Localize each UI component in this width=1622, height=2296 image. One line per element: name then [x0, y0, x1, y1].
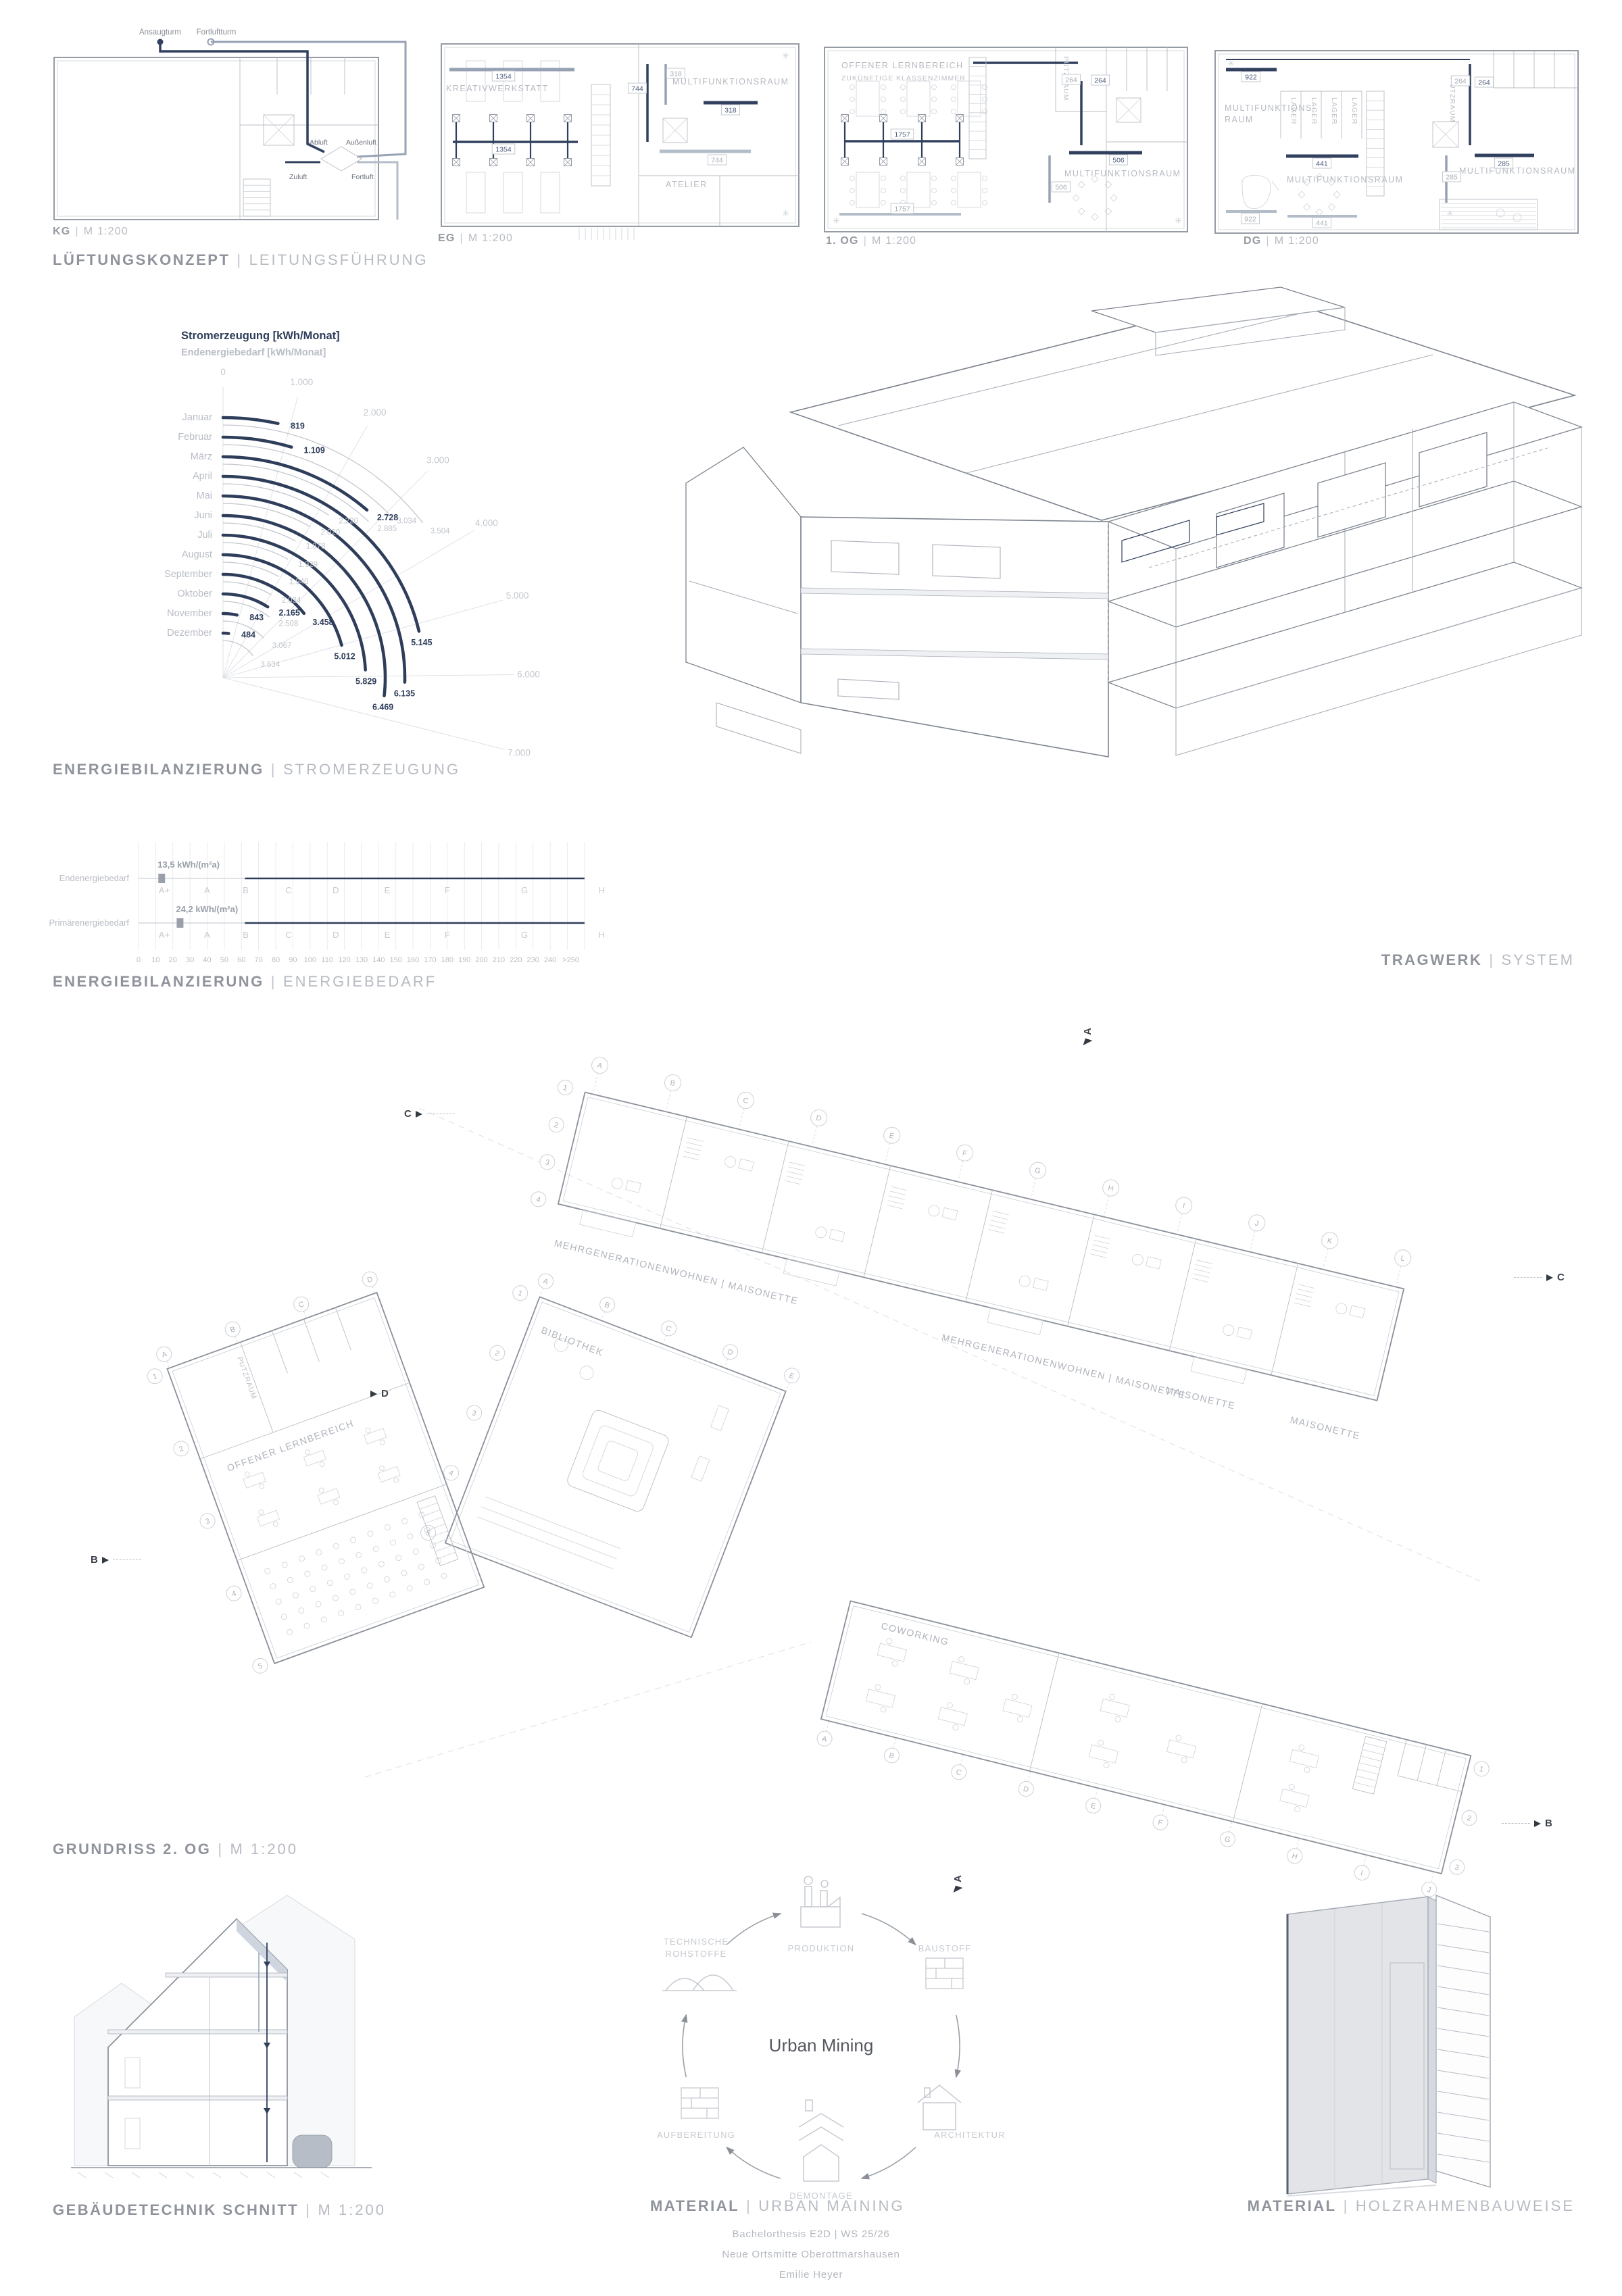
svg-text:264: 264 — [1065, 76, 1077, 84]
caption-kg: KG|M 1:200 — [53, 226, 128, 238]
plant-symbol: ✳ — [1227, 58, 1235, 68]
svg-text:441: 441 — [1316, 160, 1328, 168]
svg-text:April: April — [193, 471, 212, 482]
duct-value-badge: 264 — [1451, 76, 1469, 86]
section-title-energiebedarf: ENERGIEBILANZIERUNG|ENERGIEBEDARF — [53, 973, 437, 991]
grid-bubble: I — [1169, 1196, 1194, 1237]
svg-text:744: 744 — [711, 157, 723, 165]
svg-text:März: März — [191, 451, 212, 462]
mound-icon — [662, 1975, 737, 1991]
dg-room-lager-2: LAGER — [1310, 97, 1318, 125]
mining-node-label: TECHNISCHEROHSTOFFE — [664, 1937, 729, 1959]
dg-room-mfr-left2: RAUM — [1225, 115, 1254, 124]
svg-text:2.220: 2.220 — [339, 518, 358, 526]
svg-text:180: 180 — [441, 956, 453, 964]
energy-scale-chart: 13,5 kWh/(m²a)EndenergiebedarfA+ABCDEFGH… — [37, 837, 612, 972]
label-putzraum: PUTZRAUM — [235, 1355, 258, 1400]
svg-text:170: 170 — [424, 956, 436, 964]
grid-bubble: 1 — [145, 1367, 164, 1386]
svg-text:Juni: Juni — [194, 510, 212, 521]
svg-text:922: 922 — [1244, 216, 1256, 224]
floor-plan-kg: Ansaugturm Fortluftturm Abluft Außenluft… — [41, 14, 419, 250]
stud-frame-leaf — [1436, 1895, 1490, 2187]
svg-text:2.020: 2.020 — [320, 528, 340, 536]
caption-og1: 1. OG|M 1:200 — [826, 235, 916, 247]
duct-value-badge: 1757 — [891, 203, 914, 214]
svg-text:D: D — [333, 885, 339, 895]
mining-node-label: PRODUKTION — [788, 1943, 855, 1953]
svg-text:B: B — [243, 885, 249, 895]
svg-text:F: F — [445, 930, 450, 940]
svg-text:24,2 kWh/(m²a): 24,2 kWh/(m²a) — [176, 904, 238, 914]
svg-text:3.458: 3.458 — [312, 618, 333, 627]
grid-bubble: 3 — [198, 1512, 217, 1530]
svg-text:H: H — [599, 885, 605, 895]
footer-project: Neue Ortsmitte Oberottmarshausen — [541, 2245, 1081, 2265]
svg-text:3.634: 3.634 — [260, 661, 280, 669]
svg-text:2.885: 2.885 — [377, 525, 397, 533]
svg-text:5.145: 5.145 — [411, 638, 432, 647]
section-arrow-icon — [1546, 1274, 1553, 1281]
svg-text:Oktober: Oktober — [177, 589, 212, 599]
duct-value-badge: 506 — [1109, 155, 1127, 165]
terrace — [1440, 199, 1538, 230]
svg-text:318: 318 — [724, 107, 737, 115]
svg-text:506: 506 — [1112, 157, 1125, 165]
svg-text:2.165: 2.165 — [279, 608, 300, 618]
svg-text:60: 60 — [237, 956, 245, 964]
svg-text:Januar: Januar — [182, 412, 213, 423]
kg-label-abluft: Abluft — [310, 139, 328, 147]
plant-symbol: ✳ — [833, 216, 840, 226]
svg-text:90: 90 — [289, 956, 297, 964]
svg-text:1.000: 1.000 — [290, 377, 313, 387]
svg-text:1354: 1354 — [495, 146, 512, 154]
duct-value-badge: 285 — [1494, 158, 1513, 168]
svg-text:70: 70 — [255, 956, 263, 964]
svg-text:80: 80 — [272, 956, 280, 964]
section-title-grundriss: GRUNDRISS 2. OG|M 1:200 — [53, 1841, 298, 1858]
svg-text:285: 285 — [1446, 174, 1458, 182]
grid-bubble: D — [1017, 1770, 1038, 1798]
section-marker-b-right: B — [1502, 1818, 1552, 1829]
svg-text:819: 819 — [291, 421, 305, 430]
duct-value-badge: 441 — [1312, 158, 1331, 168]
grid-bubble: C — [731, 1091, 756, 1131]
grid-bubble: K — [1315, 1230, 1340, 1271]
dg-room-mfr-right: MULTIFUNKTIONSRAUM — [1459, 166, 1576, 176]
svg-text:Juli: Juli — [197, 530, 212, 541]
kg-label-fortluftturm: Fortluftturm — [197, 28, 237, 36]
svg-text:C: C — [285, 885, 291, 895]
svg-text:Primärenergiebedarf: Primärenergiebedarf — [49, 918, 129, 928]
dg-room-lager-3: LAGER — [1330, 97, 1338, 125]
svg-text:H: H — [599, 930, 605, 940]
grid-bubble: G — [1023, 1161, 1048, 1201]
kg-label-ansaugturm: Ansaugturm — [139, 28, 181, 36]
mining-node-label: AUFBEREITUNG — [657, 2130, 735, 2140]
footer-author: Emilie Heyer — [541, 2265, 1081, 2285]
svg-text:264: 264 — [1478, 79, 1490, 87]
grid-bubble: H — [1096, 1178, 1121, 1219]
grid-bubble: D — [804, 1108, 829, 1149]
duct-value-badge: 1757 — [891, 129, 914, 139]
plant-symbol: ✳ — [782, 51, 789, 61]
svg-text:50: 50 — [220, 956, 228, 964]
svg-text:1757: 1757 — [894, 131, 910, 139]
eg-room-atelier: ATELIER — [666, 180, 708, 189]
section-title-holzrahmen: MATERIAL|HOLZRAHMENBAUWEISE — [1248, 2197, 1575, 2215]
svg-text:100: 100 — [304, 956, 316, 964]
svg-text:230: 230 — [527, 956, 539, 964]
svg-text:G: G — [521, 885, 528, 895]
floor-plan-dg: MULTIFUNKTIONS- RAUM LAGER LAGER LAGER L… — [1210, 20, 1585, 243]
svg-text:140: 140 — [372, 956, 385, 964]
caption-dg: DG|M 1:200 — [1244, 235, 1319, 247]
svg-text:1.929: 1.929 — [298, 561, 318, 569]
grid-bubble: 5 — [251, 1656, 270, 1675]
section-marker-d: D — [370, 1388, 389, 1399]
svg-text:September: September — [164, 569, 212, 580]
svg-text:7.000: 7.000 — [508, 748, 531, 758]
duct-value-badge: 264 — [1062, 74, 1080, 84]
svg-text:240: 240 — [544, 956, 556, 964]
svg-text:6.000: 6.000 — [517, 669, 540, 679]
svg-text:1.109: 1.109 — [304, 446, 325, 455]
svg-text:130: 130 — [355, 956, 368, 964]
svg-text:922: 922 — [1245, 74, 1257, 82]
eg-room-kreativwerkstatt: KREATIVWERKSTATT — [446, 84, 549, 93]
grid-bubble: A — [816, 1719, 837, 1747]
svg-text:190: 190 — [458, 956, 470, 964]
demontage-icon — [799, 2100, 843, 2181]
svg-text:November: November — [167, 608, 212, 619]
svg-text:264: 264 — [1094, 77, 1106, 85]
og1-room-lernbereich: OFFENER LERNBEREICH — [841, 61, 964, 70]
grid-bubble: H — [1286, 1837, 1307, 1865]
svg-text:F: F — [445, 885, 450, 895]
radial-energy-chart: 01.0002.0003.0004.0005.0006.0007.000Janu… — [149, 368, 568, 774]
svg-text:843: 843 — [249, 613, 264, 622]
svg-text:506: 506 — [1055, 184, 1067, 192]
svg-text:6.469: 6.469 — [372, 703, 393, 712]
duct-value-badge: 506 — [1052, 182, 1070, 192]
dg-room-lager-1: LAGER — [1289, 97, 1298, 125]
svg-text:150: 150 — [390, 956, 402, 964]
duct-value-badge: 922 — [1242, 72, 1260, 82]
plant-symbol: ✳ — [1446, 208, 1454, 218]
factory-icon — [801, 1876, 840, 1927]
section-arrow-icon — [370, 1391, 377, 1397]
heat-exchanger-symbol — [321, 147, 362, 171]
duct-value-badge: 922 — [1241, 214, 1259, 224]
grid-bubble: 4 — [224, 1584, 243, 1603]
eg-room-multifunktionsraum: MULTIFUNKTIONSRAUM — [672, 77, 789, 86]
caption-eg: EG|M 1:200 — [438, 232, 513, 245]
duct-value-badge: 744 — [628, 83, 646, 93]
svg-text:3.504: 3.504 — [431, 528, 450, 536]
svg-text:210: 210 — [493, 956, 505, 964]
svg-text:A+: A+ — [159, 885, 170, 895]
footer-thesis: Bachelorthesis E2D | WS 25/26 — [541, 2224, 1081, 2245]
svg-text:6.135: 6.135 — [394, 689, 415, 699]
svg-text:2.728: 2.728 — [377, 513, 398, 522]
mining-node-label: BAUSTOFF — [918, 1943, 972, 1953]
section-title-stromerzeugung: ENERGIEBILANZIERUNG|STROMERZEUGUNG — [53, 761, 460, 778]
duct-value-badge: 285 — [1442, 172, 1460, 182]
gas-tank — [293, 2135, 332, 2168]
svg-text:August: August — [182, 549, 212, 560]
svg-text:Endenergiebedarf: Endenergiebedarf — [59, 873, 130, 883]
plant-symbol: ✳ — [1175, 216, 1182, 226]
dg-room-mfr-left1: MULTIFUNKTIONS- — [1225, 103, 1316, 113]
duct-value-badge: 318 — [666, 68, 685, 78]
grid-bubble: J — [1242, 1213, 1267, 1253]
footer: Bachelorthesis E2D | WS 25/26 Neue Ortsm… — [541, 2224, 1081, 2285]
og1-room-multifunktionsraum: MULTIFUNKTIONSRAUM — [1064, 169, 1181, 178]
svg-text:160: 160 — [407, 956, 419, 964]
section-marker-c-right: C — [1514, 1272, 1565, 1283]
section-arrow-icon — [1083, 1039, 1093, 1048]
radial-chart-title: Stromerzeugung [kWh/Monat] — [181, 330, 340, 343]
svg-text:Mai: Mai — [197, 491, 212, 501]
svg-text:A+: A+ — [159, 930, 170, 940]
svg-text:5.000: 5.000 — [506, 591, 529, 601]
brick-wall-icon-2 — [681, 2088, 718, 2118]
svg-text:1.878: 1.878 — [306, 543, 326, 551]
section-title-gebaeudetechnik: GEBÄUDETECHNIK SCHNITT|M 1:200 — [53, 2201, 386, 2219]
urban-mining-diagram: PRODUKTIONBAUSTOFFARCHITEKTURDEMONTAGEAU… — [629, 1865, 1034, 2216]
dg-room-lager-4: LAGER — [1350, 97, 1358, 125]
svg-text:120: 120 — [338, 956, 350, 964]
svg-text:1757: 1757 — [894, 205, 910, 214]
svg-text:D: D — [333, 930, 339, 940]
svg-text:264: 264 — [1454, 78, 1467, 86]
label-bibliothek: BIBLIOTHEK — [540, 1324, 606, 1358]
svg-text:3.067: 3.067 — [272, 642, 292, 650]
svg-text:1.940: 1.940 — [289, 578, 309, 587]
brick-wall-icon — [926, 1958, 963, 1989]
svg-text:441: 441 — [1316, 220, 1328, 228]
svg-text:G: G — [521, 930, 528, 940]
svg-text:A: A — [204, 930, 210, 940]
svg-text:13,5 kWh/(m²a): 13,5 kWh/(m²a) — [157, 859, 220, 870]
section-marker-c-left: C — [404, 1108, 455, 1120]
svg-text:30: 30 — [186, 956, 194, 964]
svg-text:3.000: 3.000 — [426, 455, 449, 466]
mining-center-label: Urban Mining — [769, 2035, 874, 2055]
piano — [1242, 175, 1271, 208]
duct-value-badge: 264 — [1091, 75, 1109, 85]
label-maisonette-2: MAISONETTE — [1289, 1414, 1362, 1441]
grid-bubble: E — [1084, 1786, 1105, 1814]
svg-text:2.000: 2.000 — [364, 407, 387, 418]
grid-bubble: F — [1152, 1803, 1173, 1831]
section-arrow-icon — [1534, 1820, 1541, 1827]
grid-bubble: I — [1353, 1853, 1374, 1882]
svg-text:Dezember: Dezember — [167, 628, 212, 639]
section-marker-a-top: A — [1084, 1026, 1091, 1047]
floor-plan-eg: KREATIVWERKSTATT MULTIFUNKTIONSRAUM ATEL… — [436, 17, 804, 240]
svg-text:B: B — [243, 930, 249, 940]
svg-text:285: 285 — [1498, 160, 1510, 168]
svg-text:Februar: Februar — [178, 432, 212, 443]
svg-text:C: C — [285, 930, 291, 940]
timber-frame-drawing — [1267, 1882, 1592, 2199]
svg-text:E: E — [385, 930, 391, 940]
svg-text:40: 40 — [203, 956, 211, 964]
kg-label-zuluft: Zuluft — [289, 173, 307, 181]
duct-value-badge: 1354 — [492, 144, 515, 154]
plant-symbol: ✳ — [782, 208, 789, 218]
grid-bubble: E — [877, 1126, 902, 1166]
section-title-lueftung: LÜFTUNGSKONZEPT|LEITUNGSFÜHRUNG — [53, 251, 428, 269]
svg-text:1354: 1354 — [495, 73, 512, 81]
building-services-section — [64, 1875, 382, 2199]
duct-value-badge: 441 — [1312, 218, 1331, 228]
section-title-tragwerk: TRAGWERK|SYSTEM — [1381, 951, 1575, 969]
house-icon — [918, 2085, 961, 2130]
section-arrow-icon — [102, 1557, 109, 1564]
section-title-urban-mining: MATERIAL|URBAN MAINING — [650, 2197, 905, 2215]
svg-text:4.000: 4.000 — [475, 518, 498, 528]
svg-text:744: 744 — [631, 85, 643, 93]
grid-bubble: F — [950, 1143, 975, 1184]
svg-text:3.034: 3.034 — [397, 518, 416, 526]
tragwerk-axonometric — [676, 284, 1608, 953]
grid-bubble: G — [1219, 1820, 1239, 1848]
svg-text:E: E — [385, 885, 391, 895]
floor-plan-og1: OFFENER LERNBEREICH ZUKÜNFTIGE KLASSENZI… — [819, 17, 1194, 243]
grid-bubble: 2 — [172, 1439, 191, 1458]
presentation-board: Ansaugturm Fortluftturm Abluft Außenluft… — [0, 0, 1622, 2296]
mining-node-label: ARCHITEKTUR — [934, 2130, 1006, 2140]
radial-chart-subtitle: Endenergiebedarf [kWh/Monat] — [181, 347, 326, 358]
duct-value-badge: 744 — [708, 155, 726, 165]
svg-text:484: 484 — [241, 630, 255, 640]
svg-text:10: 10 — [151, 956, 159, 964]
svg-text:0: 0 — [137, 956, 141, 964]
svg-text:220: 220 — [510, 956, 522, 964]
svg-text:200: 200 — [475, 956, 487, 964]
svg-text:5.829: 5.829 — [355, 676, 376, 686]
svg-text:110: 110 — [321, 956, 333, 964]
wall-panel — [1287, 1897, 1428, 2194]
grid-bubble: B — [658, 1073, 683, 1114]
section-arrow-icon — [416, 1111, 422, 1118]
svg-text:2.034: 2.034 — [282, 597, 301, 605]
duct-value-badge: 264 — [1475, 77, 1493, 87]
duct-value-badge: 318 — [721, 105, 739, 115]
kg-label-fortluft: Fortluft — [351, 173, 374, 181]
grid-bubble: C — [950, 1753, 971, 1781]
section-marker-b-left: B — [91, 1554, 141, 1566]
svg-text:0: 0 — [220, 367, 226, 377]
svg-text:>250: >250 — [562, 956, 579, 964]
kg-label-aussenluft: Außenluft — [346, 139, 376, 147]
svg-text:318: 318 — [670, 70, 682, 78]
svg-text:A: A — [204, 885, 210, 895]
svg-text:2.508: 2.508 — [279, 620, 299, 628]
duct-value-badge: 1354 — [492, 71, 515, 81]
svg-text:5.012: 5.012 — [334, 651, 355, 661]
svg-text:20: 20 — [169, 956, 177, 964]
grid-bubble: B — [883, 1736, 904, 1764]
